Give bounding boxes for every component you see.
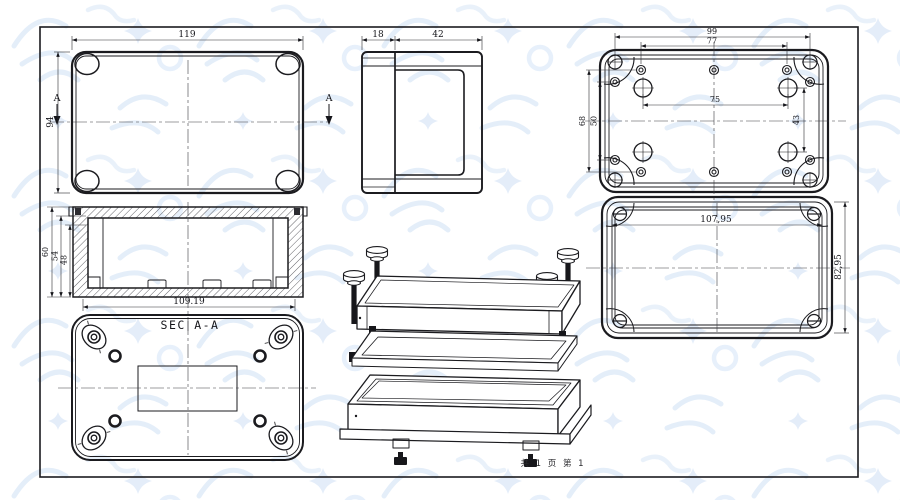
dim-label-lid-height: 94 <box>46 116 56 128</box>
dim-label-mid-height: 54 <box>51 251 60 261</box>
footer-page-info: 共 1 页 第 1 <box>520 458 585 469</box>
dim-label-corner-screw-span-w: 99 <box>707 27 717 36</box>
dim-label-section-width: 109.19 <box>173 297 205 307</box>
dim-label-inner-height: 48 <box>60 255 69 265</box>
dim-label-overall-height: 60 <box>41 247 50 257</box>
dim-label-boss-span-h: 43 <box>792 115 801 125</box>
dim-label-hole-row-span-w: 77 <box>707 37 717 46</box>
dim-label-base-depth: 42 <box>432 30 443 40</box>
dim-label-lid-width: 119 <box>178 30 195 40</box>
section-view-label: SEC A-A <box>161 318 220 332</box>
view-exploded <box>340 247 591 467</box>
dim-label-hole-row-span-h: 68 <box>578 116 587 126</box>
drawing-svg: 119 94 A A 18 42 <box>0 0 900 500</box>
dim-label-lid-inner-width: 107,95 <box>700 215 732 225</box>
dim-label-boss-span-w: 75 <box>710 95 720 104</box>
engineering-drawing-page: 119 94 A A 18 42 <box>0 0 900 500</box>
dim-label-side-hole-span-h: 50 <box>590 116 599 126</box>
exploded-lid <box>357 276 580 334</box>
exploded-base <box>340 375 591 450</box>
dim-label-lid-thickness: 18 <box>372 30 384 40</box>
dim-label-lid-inner-height: 82,95 <box>834 254 844 280</box>
section-marker-a-left: A <box>53 93 61 104</box>
section-marker-a-right: A <box>325 93 333 104</box>
